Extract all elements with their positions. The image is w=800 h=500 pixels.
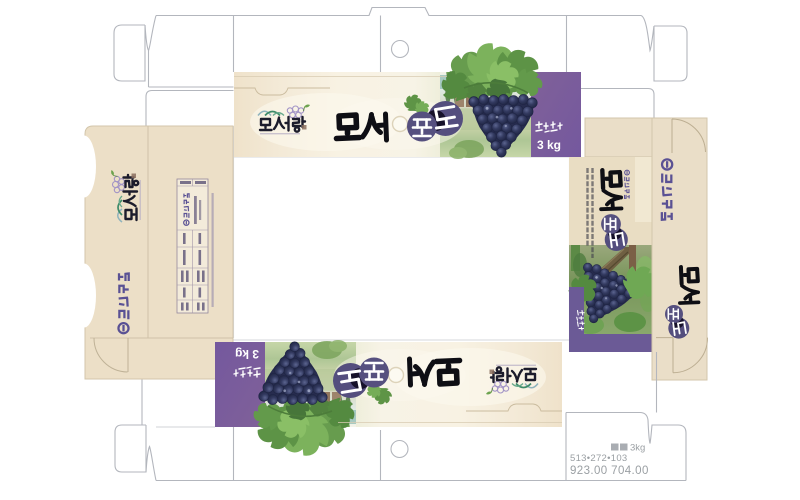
svg-text:923.00 704.00: 923.00 704.00 [570,465,649,477]
svg-text:513•272•103: 513•272•103 [570,453,628,464]
svg-text:3kg: 3kg [630,443,645,454]
